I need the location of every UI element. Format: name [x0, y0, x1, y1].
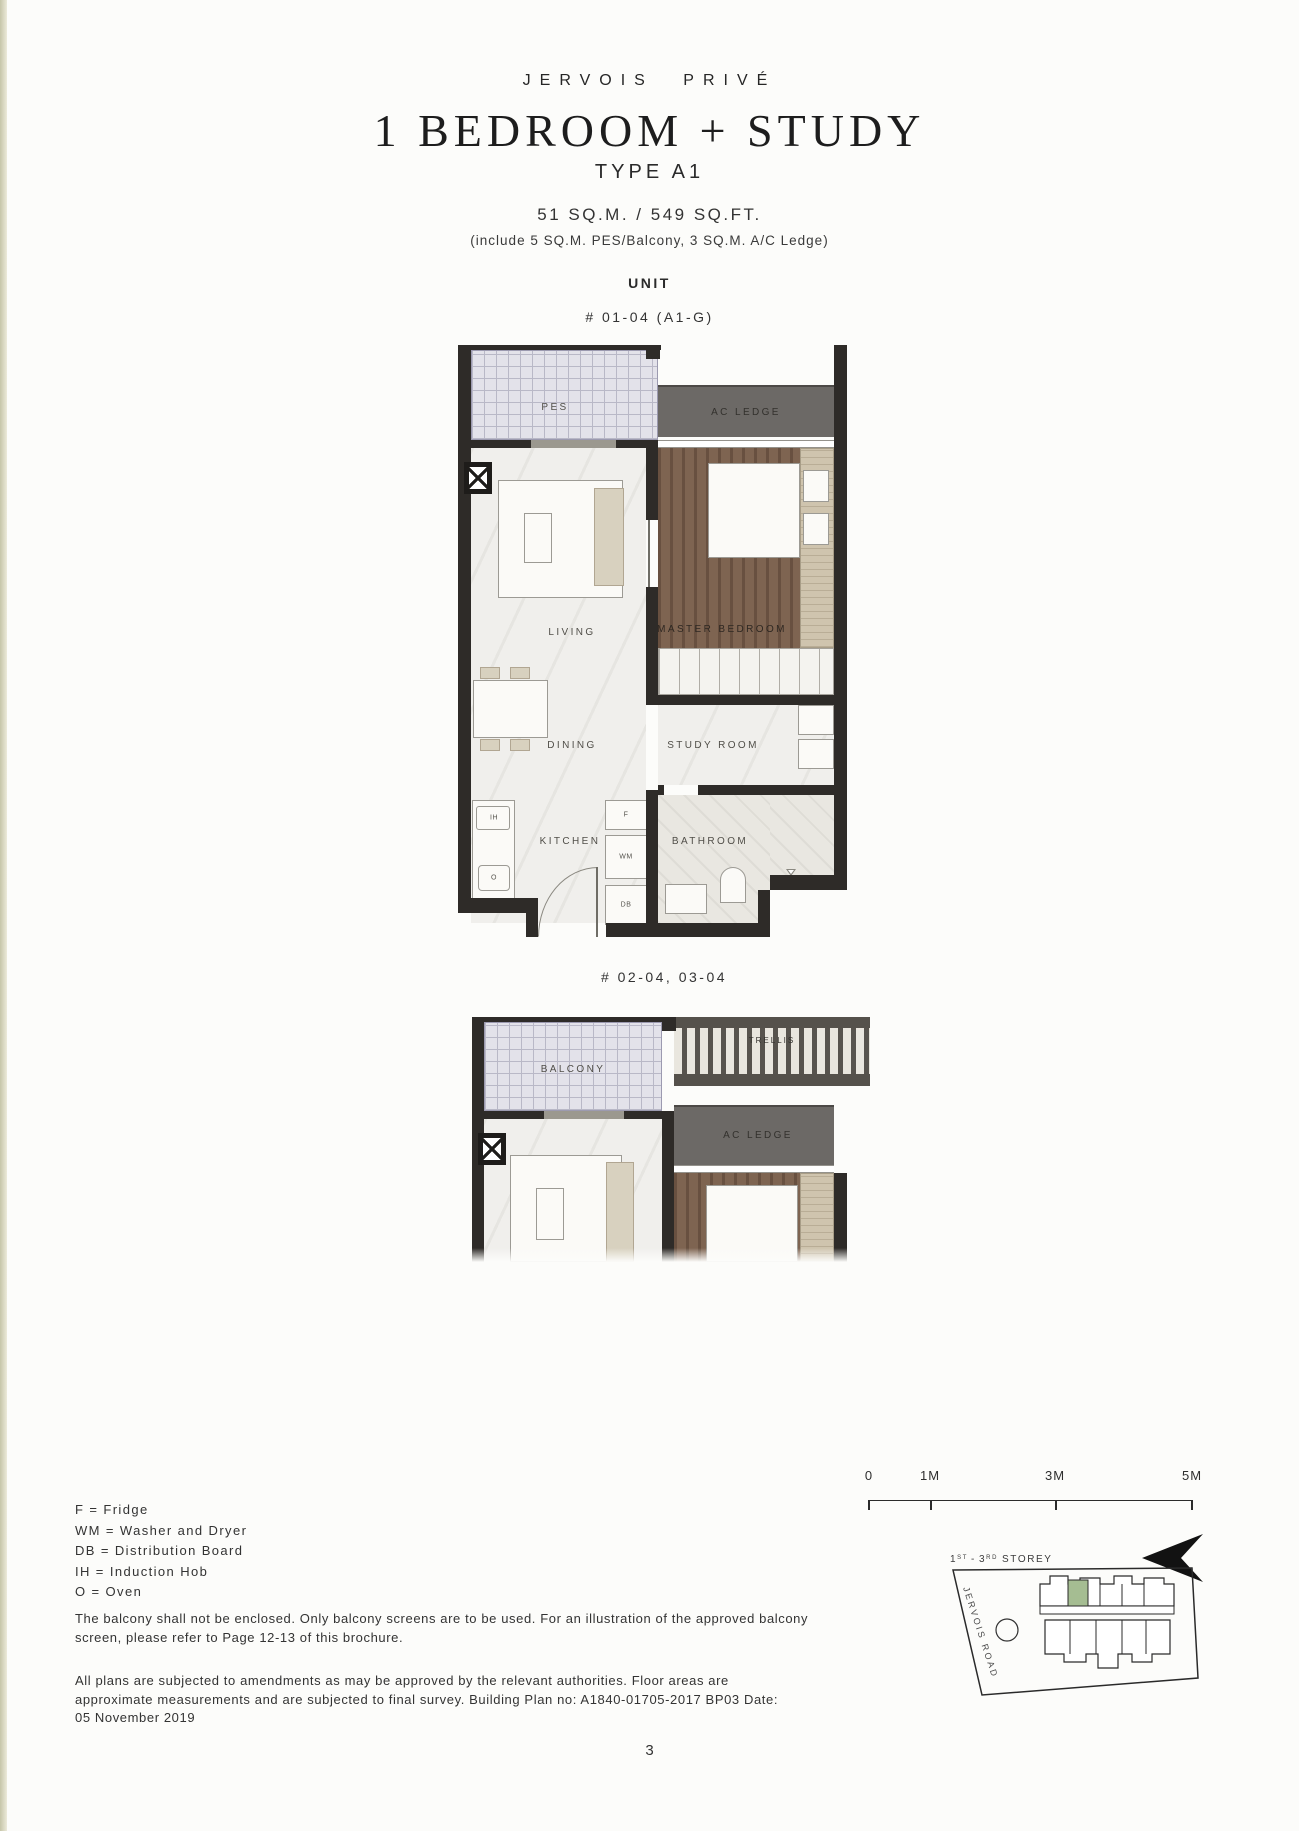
balcony-sliding-door [544, 1111, 624, 1119]
bed [708, 463, 800, 558]
kitchen-label: KITCHEN [540, 837, 601, 847]
building-corridor [1040, 1606, 1174, 1614]
wall [484, 1111, 544, 1119]
plans-disclaimer: All plans are subjected to amendments as… [75, 1672, 780, 1728]
wall [646, 790, 658, 937]
db-label: DB [621, 902, 632, 909]
tv-console-2 [606, 1162, 634, 1262]
wall [484, 1017, 664, 1022]
dining-label: DINING [547, 741, 596, 751]
wall [471, 440, 531, 448]
wall [698, 785, 834, 795]
sofa-cushion [524, 513, 552, 563]
legend: F = Fridge WM = Washer and Dryer DB = Di… [75, 1500, 247, 1603]
balcony-note: The balcony shall not be enclosed. Only … [75, 1610, 820, 1647]
scale-line [868, 1500, 1193, 1501]
vanity [665, 884, 707, 914]
sofa-cushion-2 [536, 1188, 564, 1240]
storey-label: 1ST-3RDSTOREY [950, 1554, 1053, 1565]
hob-label: IH [490, 815, 498, 822]
north-arrow-icon [1142, 1534, 1203, 1582]
plan2-crop-fade [458, 1248, 870, 1262]
unit-highlight [1068, 1580, 1088, 1606]
master-bedroom-label: MASTER BEDROOM [657, 625, 787, 635]
trellis-slats [674, 1028, 870, 1074]
building-footprint-row2 [1045, 1620, 1170, 1668]
plan1-unit-label: # 01-04 (A1-G) [0, 309, 1299, 325]
wall [646, 587, 658, 700]
wall [646, 695, 846, 705]
site-plan-map: 1ST-3RDSTOREY JERVOIS ROAD [930, 1528, 1220, 1713]
pes-label: PES [541, 403, 568, 413]
bedroom-window [658, 440, 834, 448]
trellis-frame [674, 1074, 870, 1086]
dining-chair [480, 667, 500, 679]
dining-chair [510, 739, 530, 751]
scale-label-3m: 3M [1045, 1468, 1065, 1483]
bedroom-sliding-door [648, 520, 650, 587]
legend-line: IH = Induction Hob [75, 1562, 247, 1583]
balcony-label: BALCONY [541, 1065, 606, 1075]
plan2-unit-label: # 02-04, 03-04 [458, 969, 870, 985]
unit-section-label: UNIT [0, 275, 1299, 291]
page-title: 1 BEDROOM + STUDY [0, 104, 1299, 157]
pes-sliding-door [531, 440, 616, 448]
toilet [720, 867, 746, 903]
scale-label-0: 0 [865, 1468, 873, 1483]
wardrobe [658, 648, 834, 695]
legend-line: DB = Distribution Board [75, 1541, 247, 1562]
pes-floor [471, 350, 658, 440]
living-label: LIVING [548, 628, 595, 638]
scale-tick [1055, 1500, 1057, 1510]
scale-bar: 0 1M 3M 5M [865, 1468, 1197, 1513]
study-desk [798, 705, 834, 735]
ac-unit-box-2 [478, 1133, 506, 1165]
floorplan-unit-01-04: IH O F WM DB PES AC L [458, 345, 847, 937]
bedroom-window-2 [674, 1165, 834, 1173]
wall [458, 345, 471, 913]
ac-ledge-label-2: AC LEDGE [723, 1131, 793, 1141]
dining-chair [480, 739, 500, 751]
area-label: 51 SQ.M. / 549 SQ.FT. [0, 205, 1299, 225]
study-desk [798, 739, 834, 769]
roundabout-circle [996, 1619, 1018, 1641]
legend-line: O = Oven [75, 1582, 247, 1603]
dining-chair [510, 667, 530, 679]
bathroom-label: BATHROOM [672, 837, 748, 847]
ac-ledge-label: AC LEDGE [711, 408, 781, 418]
wall [471, 345, 661, 350]
brand-title: JERVOIS PRIVÉ [0, 72, 1299, 90]
wall [758, 890, 770, 937]
wall [624, 1111, 664, 1119]
scale-tick [868, 1500, 870, 1510]
wall [606, 923, 770, 937]
wall [658, 785, 664, 795]
wall [662, 1111, 674, 1262]
dining-table [473, 680, 548, 738]
scale-label-5m: 5M [1182, 1468, 1202, 1483]
wall [834, 345, 847, 890]
study-room-label: STUDY ROOM [667, 741, 759, 751]
fridge-label: F [624, 812, 629, 819]
wall [646, 440, 658, 520]
trellis-frame [674, 1017, 870, 1028]
trellis-label: TRELLIS [749, 1037, 795, 1045]
building-footprint-row1 [1040, 1576, 1174, 1606]
legend-line: F = Fridge [75, 1500, 247, 1521]
tv-console [594, 488, 624, 586]
scale-tick [1191, 1500, 1193, 1510]
nightstand [803, 470, 829, 502]
wall [662, 1017, 676, 1031]
page-number: 3 [0, 1742, 1299, 1759]
area-note: (include 5 SQ.M. PES/Balcony, 3 SQ.M. A/… [0, 233, 1299, 248]
oven-label: O [491, 875, 497, 882]
floorplan-unit-02-04: BALCONY TRELLIS AC LEDGE [458, 1010, 870, 1262]
brochure-page: JERVOIS PRIVÉ 1 BEDROOM + STUDY TYPE A1 … [0, 0, 1299, 1831]
nightstand [803, 513, 829, 545]
washer-label: WM [619, 854, 632, 861]
legend-line: WM = Washer and Dryer [75, 1521, 247, 1542]
entry-door-leaf [596, 867, 598, 937]
unit-type-label: TYPE A1 [0, 161, 1299, 184]
wall [770, 875, 847, 890]
wall [646, 345, 660, 359]
ac-unit-box [464, 462, 492, 494]
scale-tick [930, 1500, 932, 1510]
scale-label-1m: 1M [920, 1468, 940, 1483]
wall [526, 898, 538, 937]
